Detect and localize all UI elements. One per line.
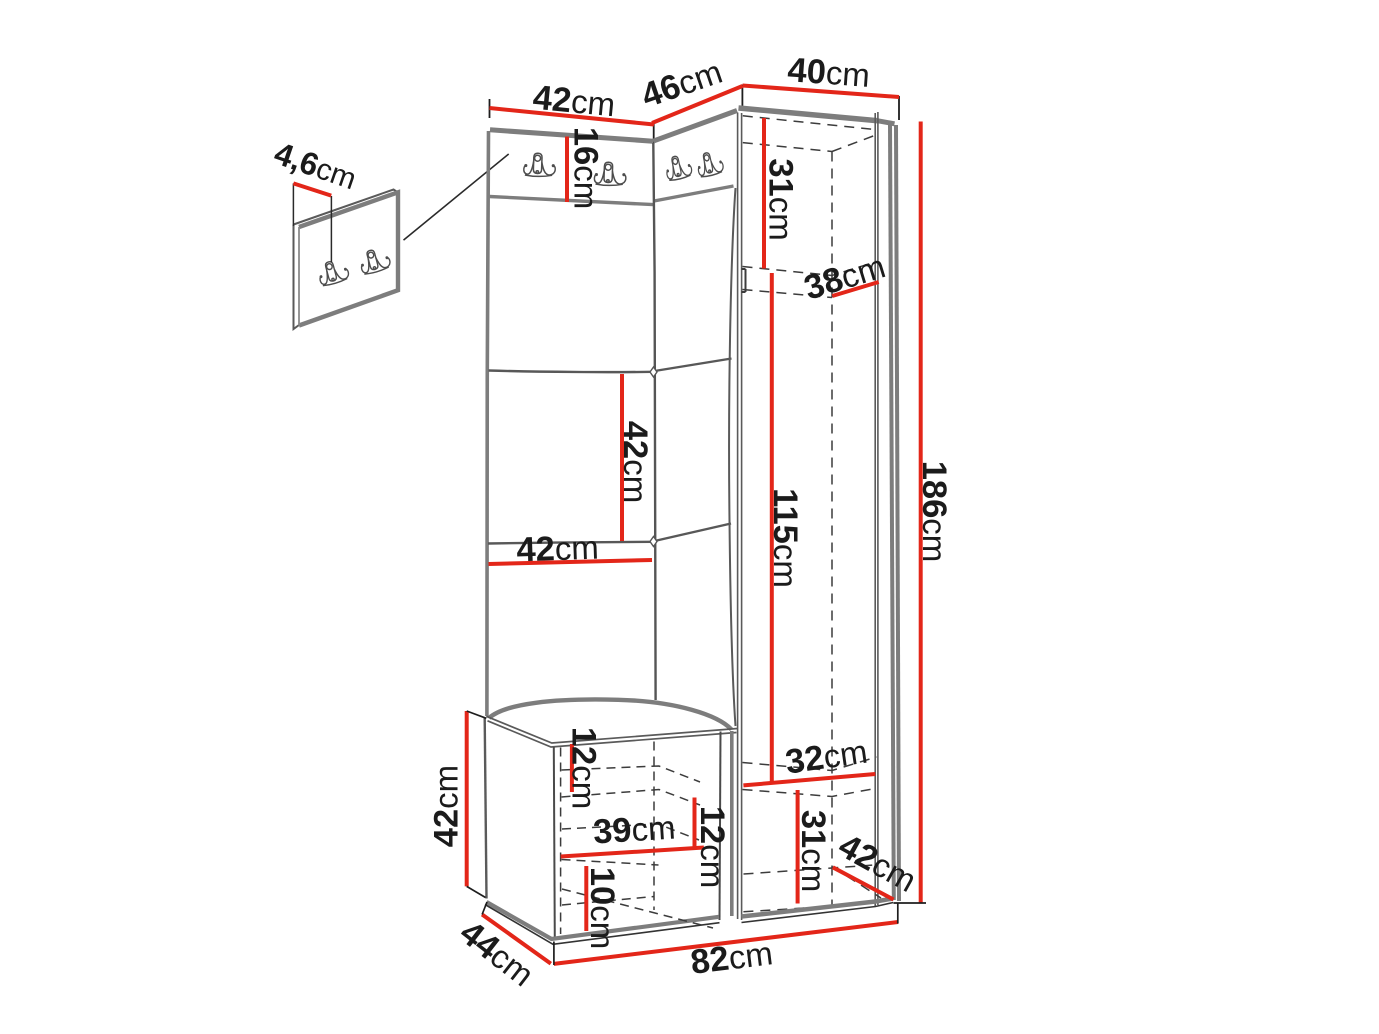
svg-text:10cm: 10cm <box>583 867 621 949</box>
svg-text:31cm: 31cm <box>794 810 832 892</box>
svg-text:39cm: 39cm <box>592 809 677 852</box>
svg-text:42cm: 42cm <box>531 79 617 125</box>
svg-text:12cm: 12cm <box>565 727 603 809</box>
svg-text:42cm: 42cm <box>516 529 600 570</box>
svg-text:186cm: 186cm <box>915 461 953 563</box>
svg-text:115cm: 115cm <box>766 488 804 588</box>
svg-text:40cm: 40cm <box>786 51 871 95</box>
svg-text:42cm: 42cm <box>616 421 654 503</box>
svg-text:31cm: 31cm <box>762 158 800 240</box>
svg-text:16cm: 16cm <box>567 127 605 209</box>
svg-text:12cm: 12cm <box>693 806 731 888</box>
svg-text:42cm: 42cm <box>428 765 466 847</box>
